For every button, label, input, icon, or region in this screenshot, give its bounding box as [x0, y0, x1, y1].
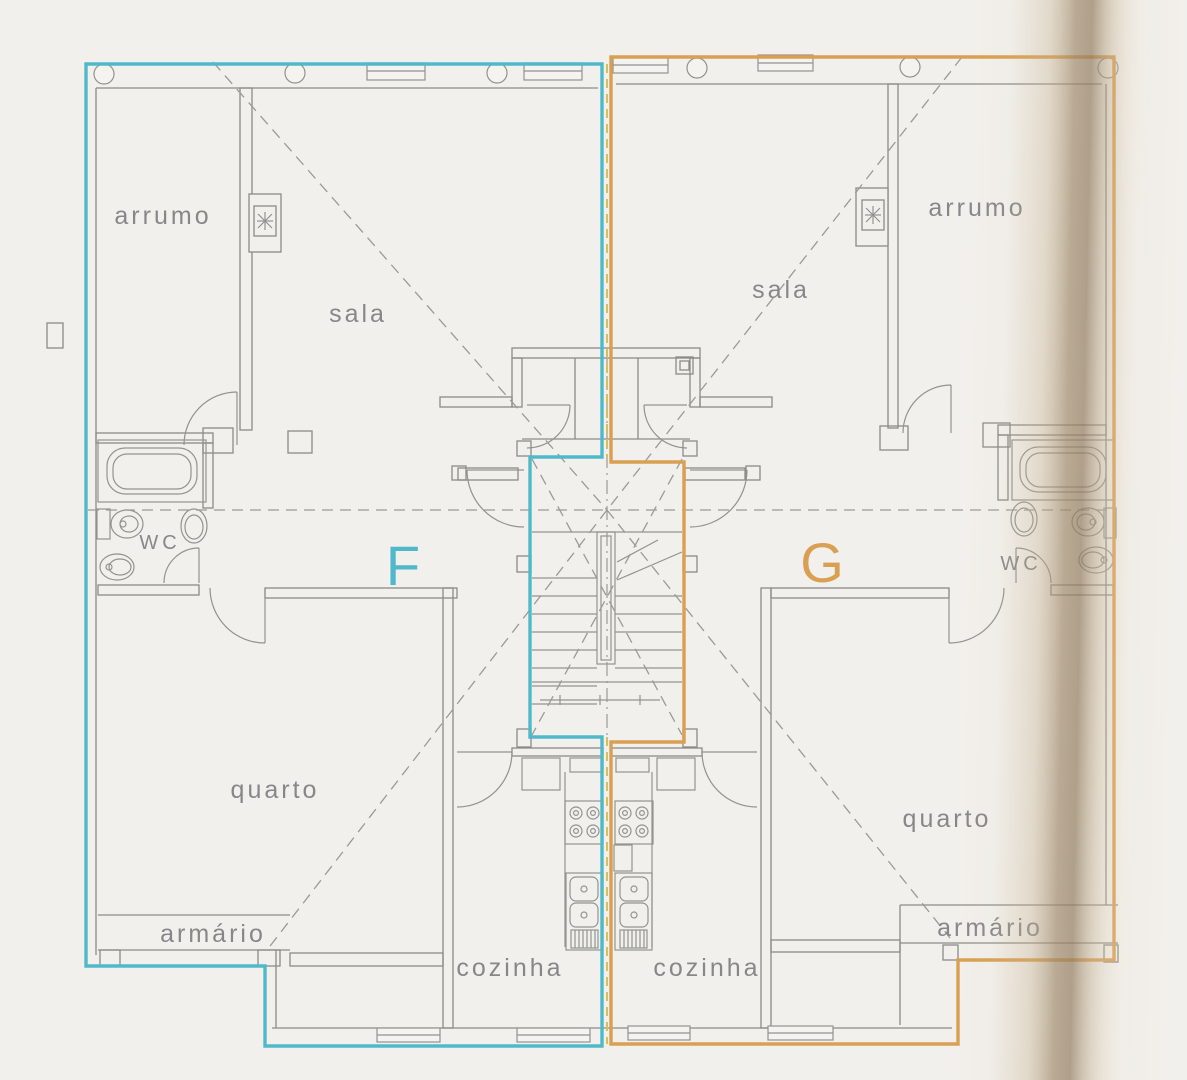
column — [94, 64, 114, 84]
room-label-sala-f: sala — [329, 300, 387, 328]
heater-niche-g — [856, 188, 888, 246]
heater-niche-f — [249, 194, 281, 252]
room-label-cozinha-f: cozinha — [456, 954, 563, 982]
room-label-wc-f: WC — [139, 532, 180, 554]
room-label-quarto-f: quarto — [231, 776, 320, 804]
room-label-arrumo-f: arrumo — [114, 202, 211, 230]
unit-letter-f: F — [386, 534, 420, 597]
column — [687, 58, 707, 78]
column — [487, 63, 507, 83]
unit-letter-g: G — [800, 531, 844, 594]
floor-plan-drawing: arrumo sala WC quarto armário cozinha F … — [0, 0, 1187, 1080]
scanned-floor-plan-page: arrumo sala WC quarto armário cozinha F … — [0, 0, 1187, 1080]
column — [285, 63, 305, 83]
room-label-armario-f: armário — [160, 920, 266, 948]
room-label-sala-g: sala — [752, 276, 810, 304]
scan-shadow-stripe — [948, 0, 1187, 1080]
column — [900, 57, 920, 77]
room-label-cozinha-g: cozinha — [653, 954, 760, 982]
